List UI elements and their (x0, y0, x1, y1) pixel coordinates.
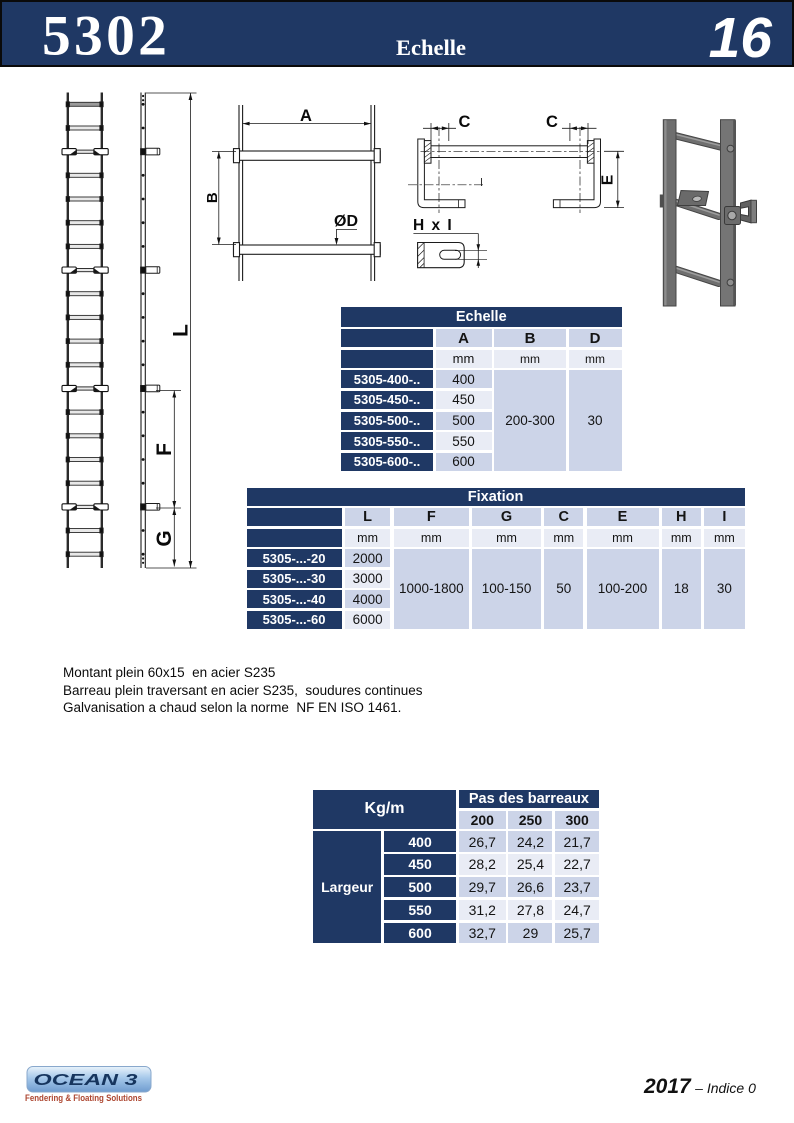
svg-text:B: B (204, 192, 221, 203)
svg-text:A: A (300, 107, 312, 125)
svg-text:OCEAN 3: OCEAN 3 (34, 1072, 138, 1089)
svg-text:C: C (546, 113, 558, 131)
svg-text:L: L (170, 324, 193, 337)
svg-text:Fendering & Floating Solutions: Fendering & Floating Solutions (25, 1093, 142, 1103)
svg-text:C: C (459, 113, 471, 131)
svg-text:G: G (153, 530, 176, 546)
svg-text:F: F (153, 443, 176, 456)
svg-text:H x I: H x I (413, 217, 453, 234)
svg-text:E: E (600, 175, 617, 185)
svg-text:ØD: ØD (334, 213, 358, 230)
